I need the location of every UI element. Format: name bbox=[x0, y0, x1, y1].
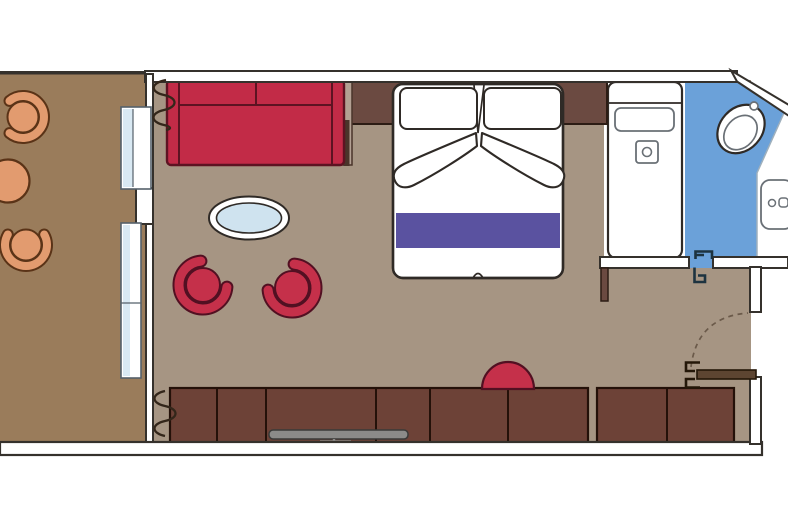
tub-drain bbox=[643, 148, 652, 157]
wardrobe-row-right bbox=[597, 388, 734, 443]
pillow-right bbox=[484, 88, 561, 129]
right-wall-upper bbox=[750, 267, 761, 312]
sliding-glass-door-lower bbox=[121, 223, 141, 378]
sofa bbox=[167, 80, 344, 165]
door-leaf bbox=[697, 370, 756, 379]
coffee-table bbox=[209, 197, 289, 240]
right-wall-lower bbox=[750, 377, 761, 444]
top-wall bbox=[145, 71, 737, 82]
double-bed bbox=[393, 84, 564, 278]
bathroom bbox=[604, 79, 788, 268]
bed-runner bbox=[396, 213, 560, 248]
bathtub bbox=[608, 82, 682, 258]
flush-button bbox=[750, 102, 758, 110]
pillow-left bbox=[400, 88, 477, 129]
floorplan-canvas bbox=[0, 0, 788, 525]
balcony-railing bbox=[0, 71, 146, 75]
washbasin bbox=[761, 180, 788, 229]
bathroom-door-threshold bbox=[689, 257, 713, 268]
balcony-chair-bottom bbox=[5, 230, 47, 266]
bottom-wall bbox=[0, 442, 762, 455]
balcony-chair-top bbox=[8, 96, 44, 138]
floorplan-svg bbox=[0, 0, 788, 525]
bathroom-wall-left bbox=[600, 257, 689, 268]
divider-wall-block bbox=[136, 188, 153, 224]
sliding-glass-door-upper bbox=[121, 107, 151, 189]
bathroom-wall-stub bbox=[601, 268, 608, 301]
